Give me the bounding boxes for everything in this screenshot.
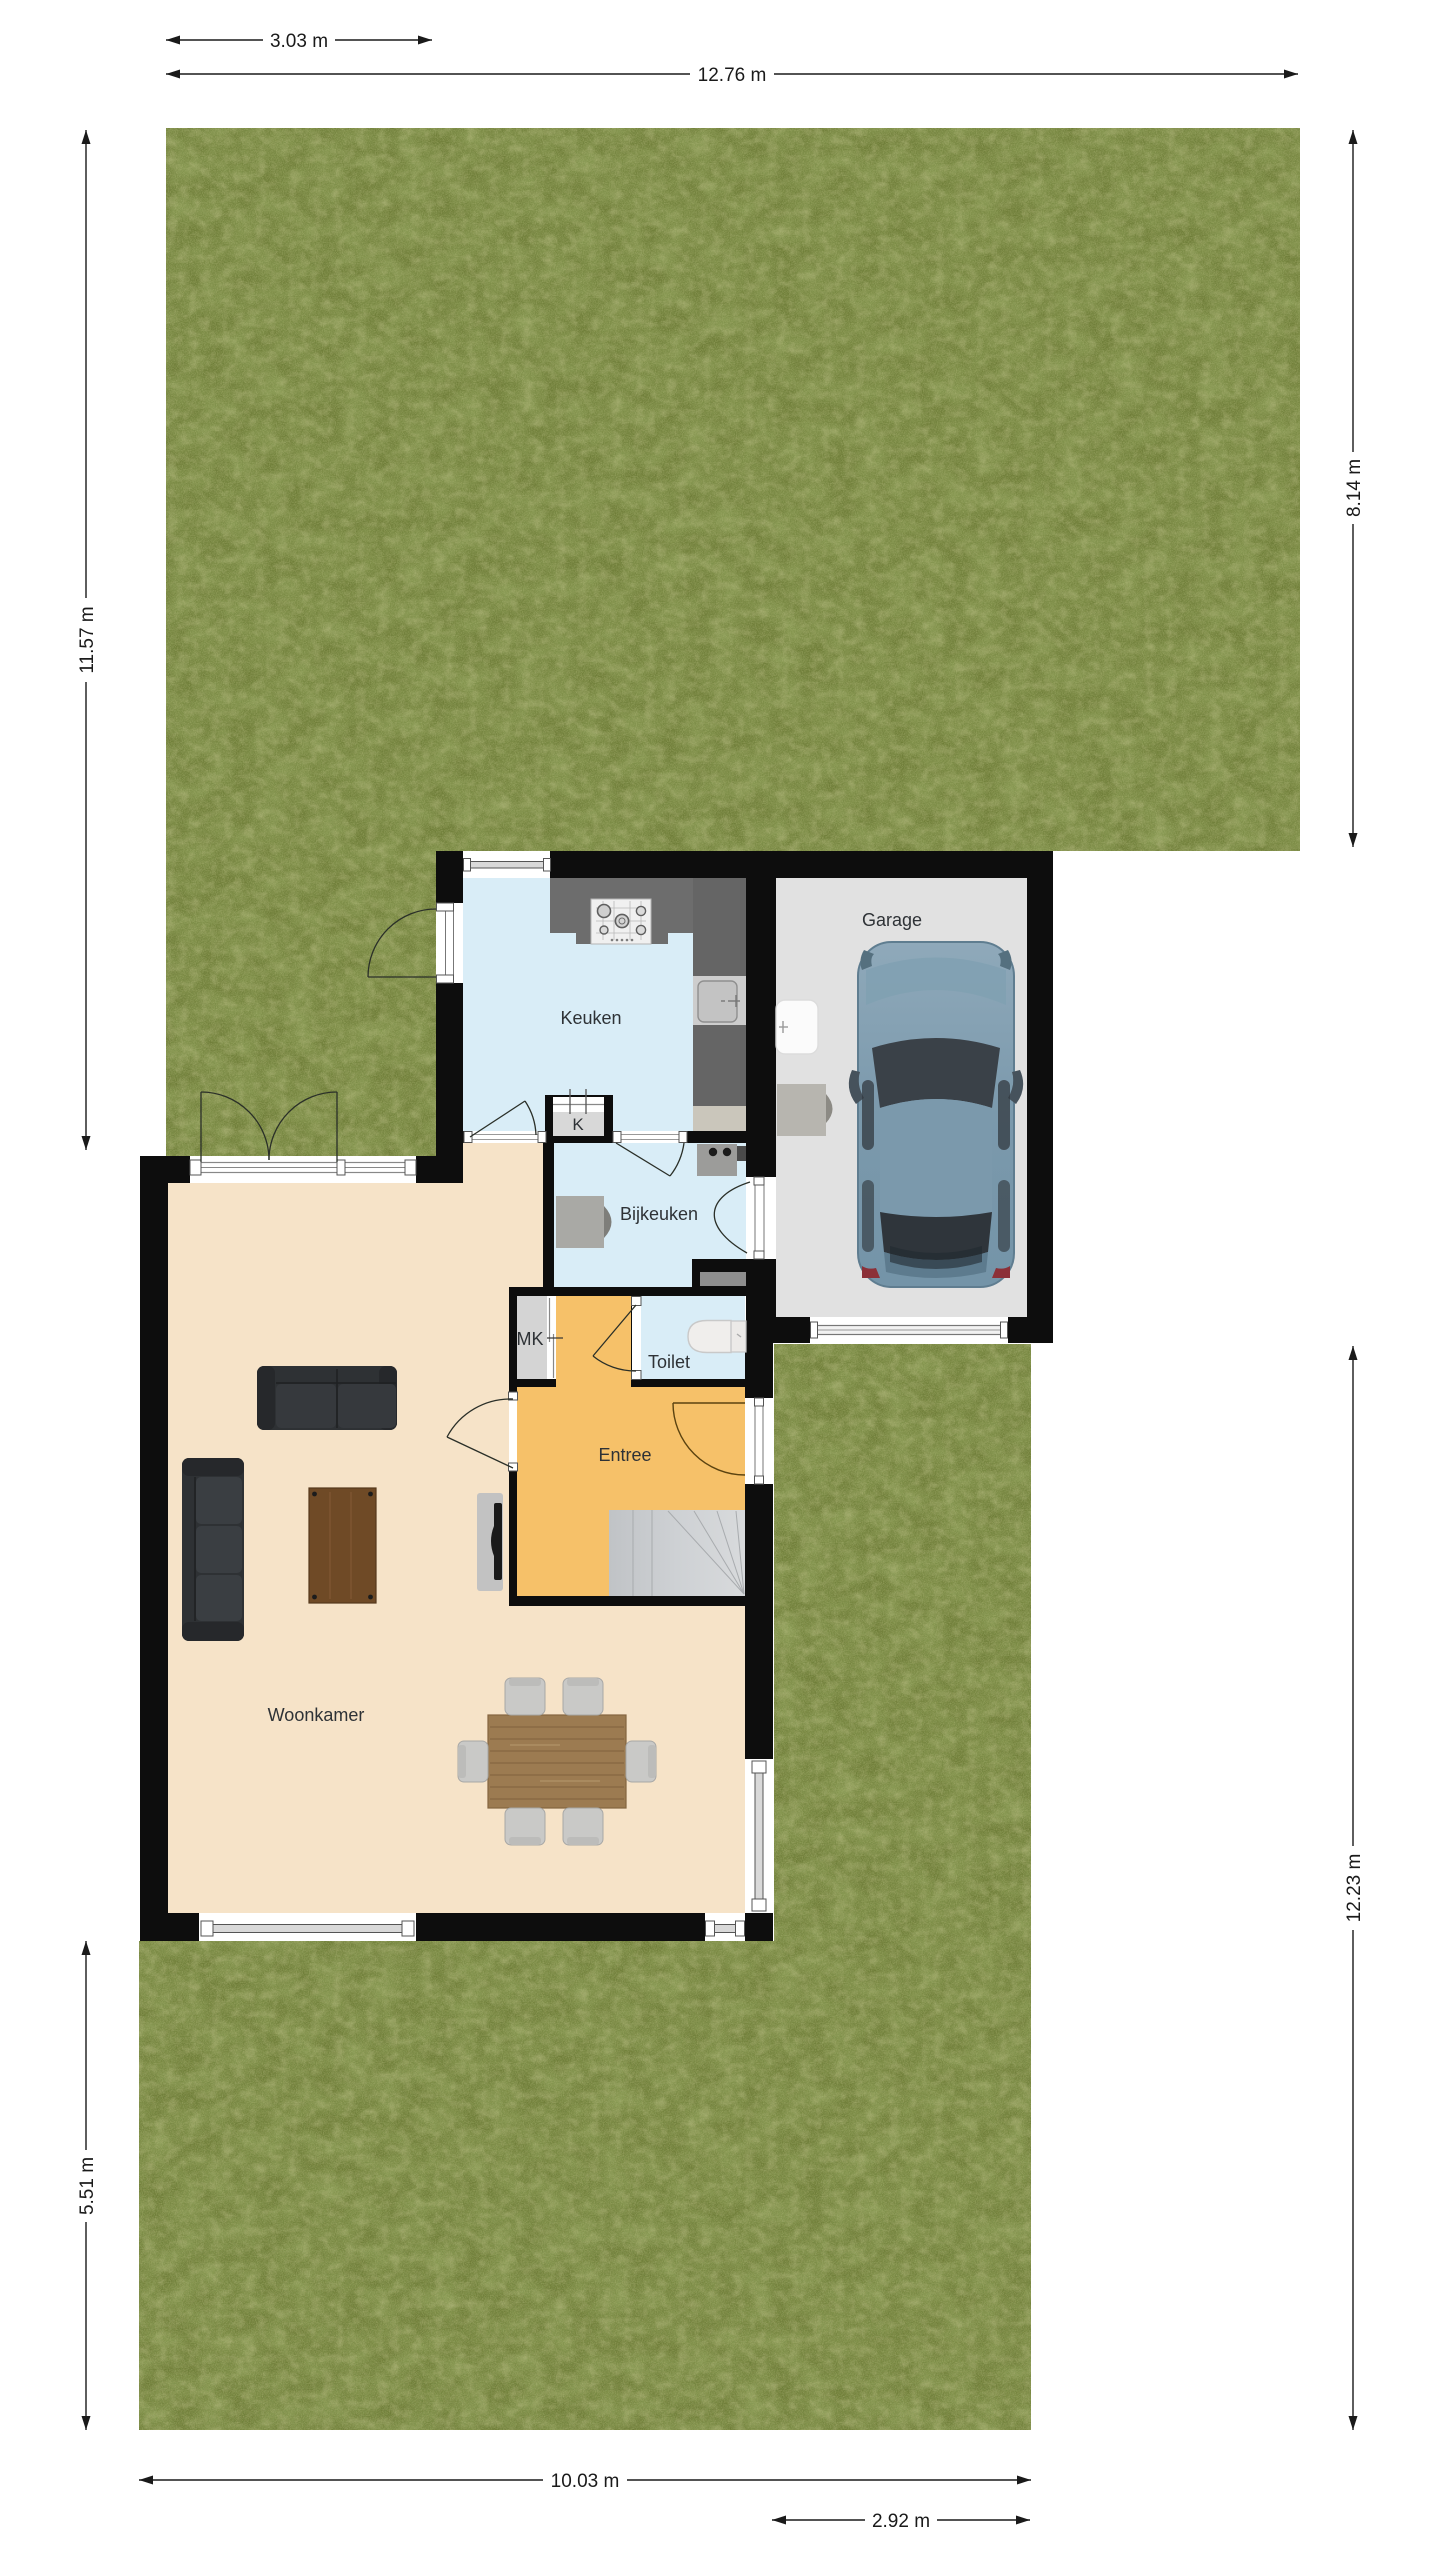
svg-text:Entree: Entree	[598, 1445, 651, 1465]
svg-text:Garage: Garage	[862, 910, 922, 930]
svg-text:Bijkeuken: Bijkeuken	[620, 1204, 698, 1224]
svg-text:12.76 m: 12.76 m	[698, 65, 767, 86]
svg-text:Woonkamer: Woonkamer	[268, 1705, 365, 1725]
svg-text:8.14 m: 8.14 m	[1344, 459, 1365, 517]
svg-text:K: K	[572, 1115, 584, 1134]
svg-text:5.51 m: 5.51 m	[77, 2157, 98, 2215]
svg-text:12.23 m: 12.23 m	[1344, 1854, 1365, 1923]
svg-text:2.92 m: 2.92 m	[872, 2511, 930, 2532]
svg-text:MK: MK	[517, 1329, 544, 1349]
svg-text:Keuken: Keuken	[560, 1008, 621, 1028]
svg-text:11.57 m: 11.57 m	[77, 606, 98, 673]
svg-text:10.03 m: 10.03 m	[551, 2471, 620, 2492]
svg-text:Toilet: Toilet	[648, 1352, 690, 1372]
svg-text:3.03 m: 3.03 m	[270, 31, 328, 52]
